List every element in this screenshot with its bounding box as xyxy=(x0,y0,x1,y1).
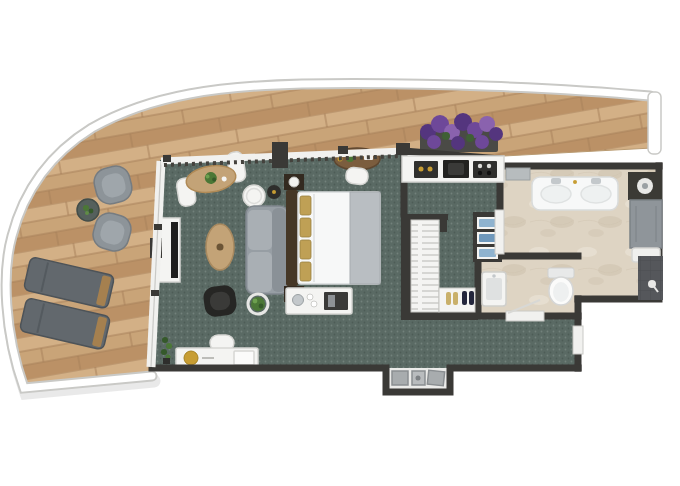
double-bed xyxy=(284,174,380,302)
floor-plan xyxy=(0,0,680,486)
window-sill xyxy=(506,168,530,180)
washbasin xyxy=(482,272,506,306)
cooktop xyxy=(473,161,497,178)
wall-pier xyxy=(272,142,288,168)
wardrobe xyxy=(411,220,439,312)
wet-wall xyxy=(638,256,663,300)
desk-chair xyxy=(345,167,369,186)
kettle xyxy=(293,295,304,306)
floor-plan-canvas xyxy=(0,0,680,486)
double-vanity xyxy=(532,177,618,210)
toilet xyxy=(548,268,574,305)
headboard xyxy=(286,190,298,286)
kitchenette xyxy=(402,156,504,182)
bathroom-sliding-door xyxy=(495,210,504,254)
entry-alcove xyxy=(392,370,445,386)
doormat-1 xyxy=(392,371,408,385)
hob-knobs xyxy=(414,161,438,178)
gray-runner xyxy=(350,192,380,284)
dark-tray-table xyxy=(267,185,281,199)
desk-box xyxy=(234,351,254,365)
terrace-side-table xyxy=(77,199,99,221)
minibar-console xyxy=(286,288,352,314)
lamp-top xyxy=(289,177,299,187)
gold-tray xyxy=(184,351,198,365)
shower-column xyxy=(628,172,662,262)
ottoman-button xyxy=(217,244,224,251)
round-side-table xyxy=(243,185,265,207)
sofa-plant xyxy=(248,294,268,314)
mini-fridge xyxy=(324,292,348,310)
sofa xyxy=(246,206,288,294)
tv xyxy=(171,222,178,278)
railing-end-cap xyxy=(648,92,661,154)
hall-door xyxy=(573,326,583,354)
shower-tile xyxy=(630,200,662,248)
doormat-3 xyxy=(427,370,444,386)
